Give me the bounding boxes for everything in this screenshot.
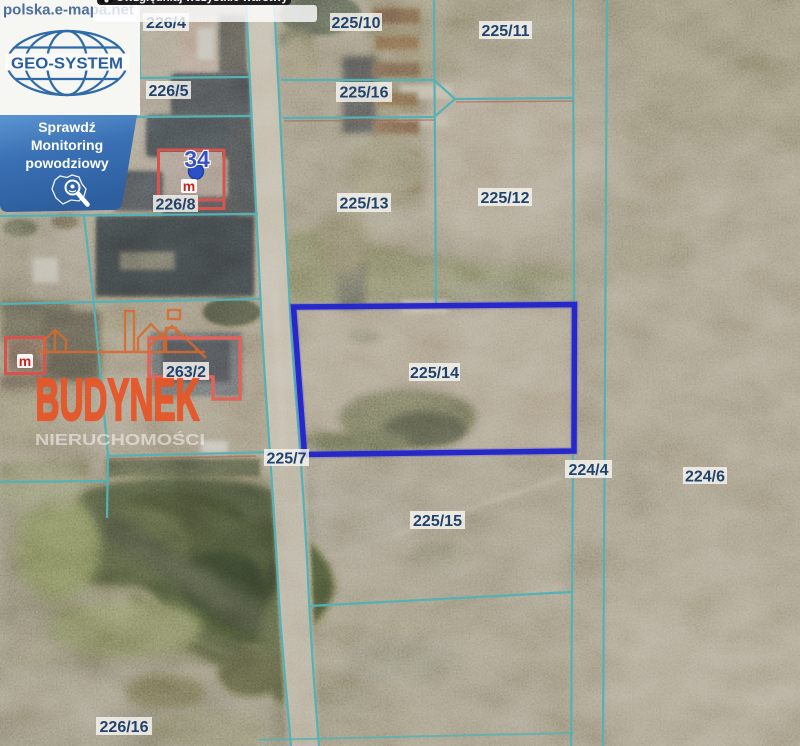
svg-text:powodziowy: powodziowy xyxy=(25,155,108,171)
svg-text:225/10: 225/10 xyxy=(332,15,381,32)
svg-text:Monitoring: Monitoring xyxy=(31,137,103,153)
svg-text:BUDYNEK: BUDYNEK xyxy=(36,367,200,433)
svg-text:m: m xyxy=(19,353,31,369)
svg-text:226/16: 226/16 xyxy=(100,719,149,736)
svg-text:225/16: 225/16 xyxy=(340,85,389,102)
svg-text:225/7: 225/7 xyxy=(266,450,306,467)
svg-text:NIERUCHOMOŚCI: NIERUCHOMOŚCI xyxy=(35,431,205,449)
svg-text:225/12: 225/12 xyxy=(481,190,530,207)
svg-text:225/11: 225/11 xyxy=(481,23,529,40)
svg-text:226/5: 226/5 xyxy=(148,83,188,100)
svg-text:Sprawdź: Sprawdź xyxy=(38,119,96,135)
svg-text:225/15: 225/15 xyxy=(413,513,462,530)
svg-text:224/4: 224/4 xyxy=(568,462,608,479)
svg-text:Uwzględniaj wszystkie warstwy: Uwzględniaj wszystkie warstwy xyxy=(116,0,289,4)
svg-text:225/14: 225/14 xyxy=(410,365,459,382)
svg-text:226/8: 226/8 xyxy=(155,196,195,213)
svg-text:m: m xyxy=(183,178,195,194)
svg-text:34: 34 xyxy=(184,146,210,172)
svg-text:225/13: 225/13 xyxy=(340,195,389,212)
svg-text:GEO-SYSTEM: GEO-SYSTEM xyxy=(11,56,123,73)
svg-text:224/6: 224/6 xyxy=(685,468,725,485)
